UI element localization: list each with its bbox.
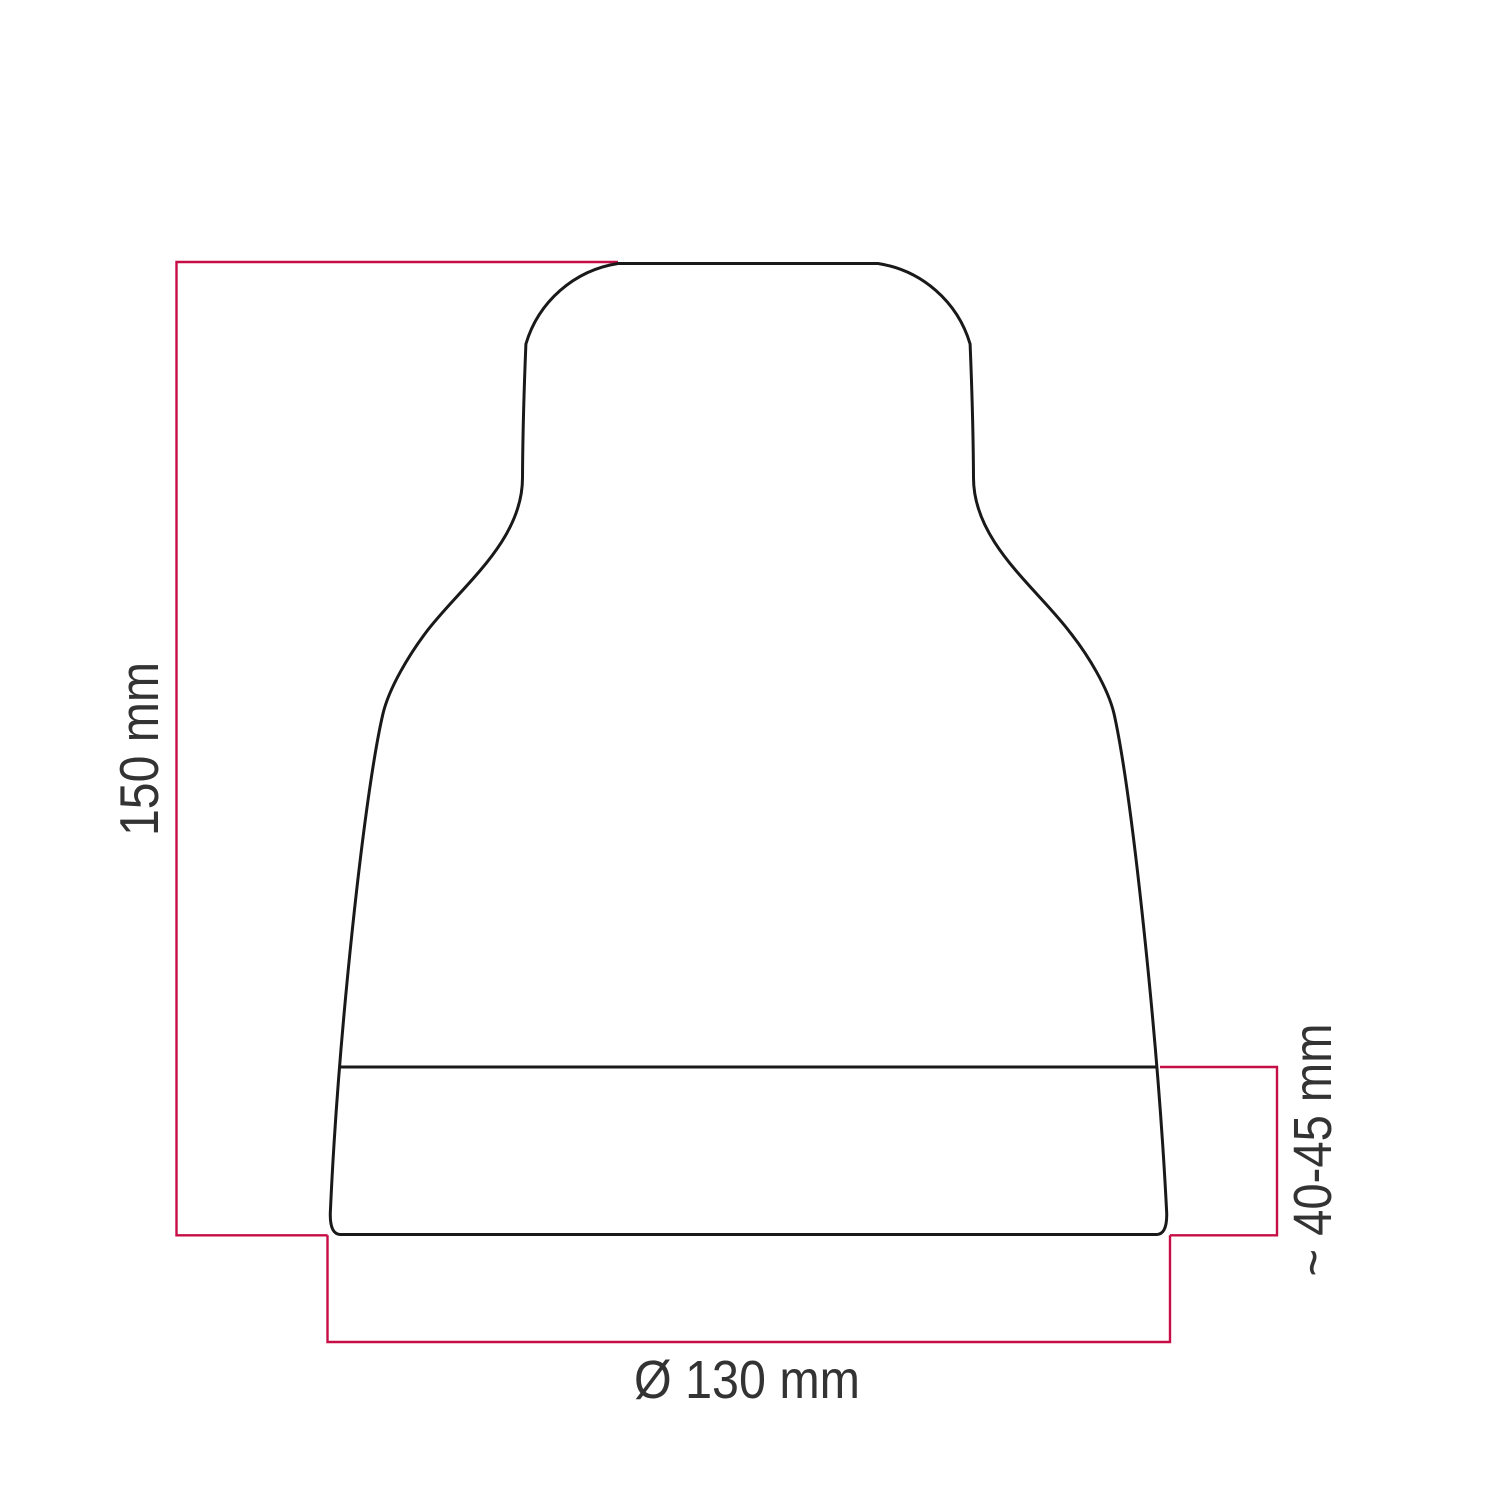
svg-text:~ 40-45 mm: ~ 40-45 mm (1283, 1024, 1343, 1277)
svg-text:150 mm: 150 mm (108, 662, 170, 836)
svg-text:Ø 130 mm: Ø 130 mm (634, 1350, 860, 1410)
